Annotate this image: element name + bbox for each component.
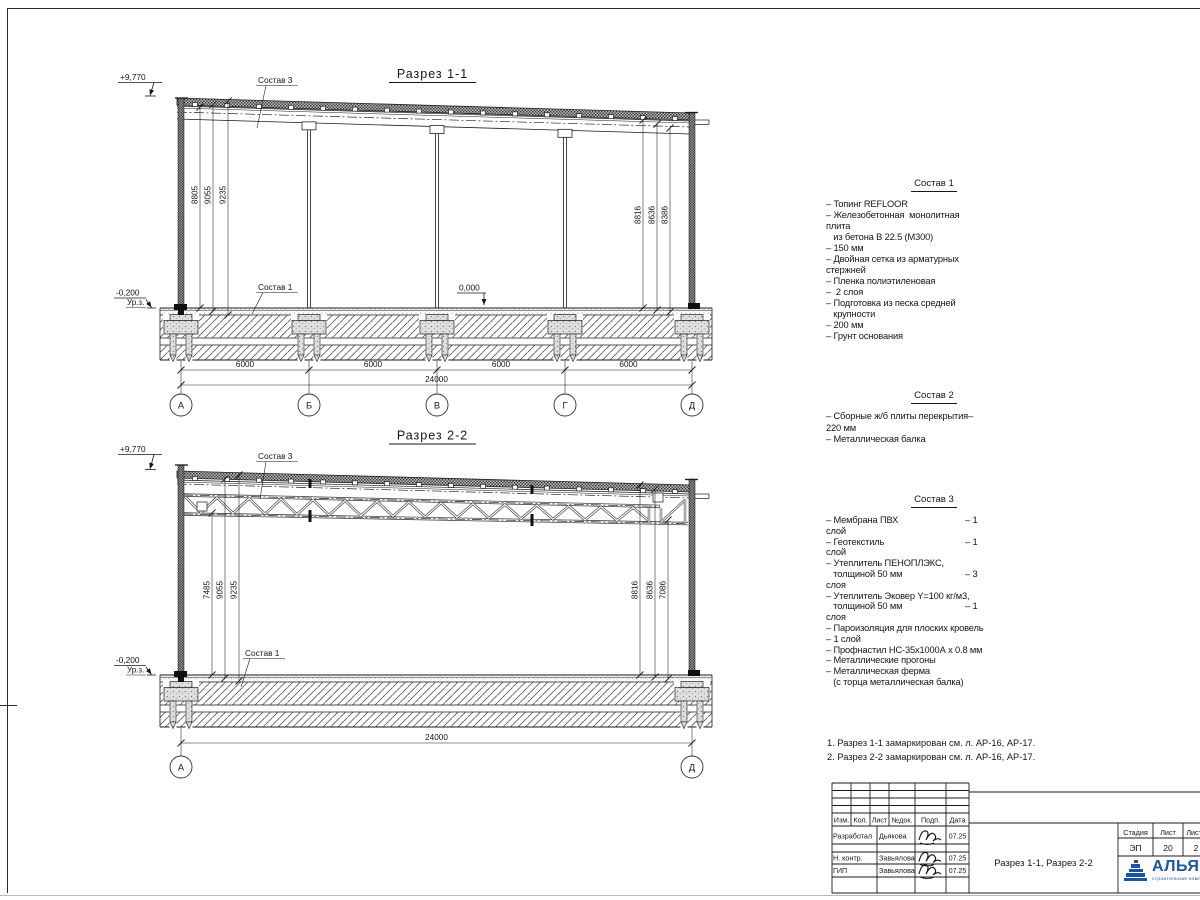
drawing-text: А (178, 400, 185, 410)
composition-item-value: – 1 (965, 537, 977, 548)
composition-line: – Пароизоляция для плоских кровель (826, 623, 1042, 634)
drawing-text: +9,770 (120, 72, 146, 82)
composition-line: слой (826, 526, 1042, 537)
sheet-notes: 1. Разрез 1-1 замаркирован см. л. АР-16,… (827, 737, 1035, 764)
composition-block: Состав 3– Мембрана ПВХ– 1слой– Геотексти… (826, 494, 1042, 688)
composition-item-text: – Металлическая ферма (826, 666, 930, 676)
composition-line: – Грунт основания (826, 331, 1042, 342)
drawing-text: Лист (872, 816, 888, 825)
composition-line: (с торца металлическая балка) (826, 677, 1042, 688)
drawing-text: ЭП (1129, 843, 1141, 853)
composition-item-text: крупности (826, 309, 875, 319)
composition-line: – Утеплитель Эковер Y=100 кг/м3, (826, 591, 1042, 602)
composition-item-value: – 1 (965, 601, 977, 612)
drawing-text: Разрез 1-1 (397, 67, 468, 81)
composition-line: – Сборные ж/б плиты перекрытия– (826, 411, 1042, 423)
drawing-text: Ур.з. (127, 298, 144, 307)
composition-line: – Металлические прогоны (826, 655, 1042, 666)
composition-title: Состав 1 (911, 178, 957, 192)
drawing-text: 07.25 (949, 868, 967, 875)
composition-item-text: толщиной 50 мм (826, 601, 902, 611)
drawing-text: Кол. (853, 816, 867, 825)
drawing-text: 24000 (425, 733, 448, 742)
composition-item-text: – Утеплитель ПЕНОПЛЭКС, (826, 558, 944, 568)
drawing-text: В (434, 400, 440, 410)
composition-line: – 150 мм (826, 243, 1042, 254)
composition-line: – Профнастил НС-35х1000А х 0.8 мм (826, 645, 1042, 656)
company-logo: АЛЬЯНС строительная компания (1124, 858, 1200, 882)
section-1-1-drawing: Разрез 1-1880590559235881686368386Состав… (100, 60, 745, 425)
composition-item-text: – Железобетонная монолитная (826, 210, 960, 220)
composition-line: слой (826, 547, 1042, 558)
composition-item-text: из бетона В 22.5 (М300) (826, 232, 933, 242)
composition-line: из бетона В 22.5 (М300) (826, 232, 1042, 243)
composition-item-text: 220 мм (826, 423, 856, 433)
drawing-text: 9235 (219, 185, 228, 204)
drawing-text: Б (306, 400, 312, 410)
drawing-text: 7086 (659, 580, 668, 599)
composition-line: – Металлическая ферма (826, 666, 1042, 677)
composition-line: – Металлическая балка (826, 434, 1042, 446)
composition-line: слоя (826, 580, 1042, 591)
drawing-text: 9235 (230, 580, 239, 599)
drawing-text: 2 (1194, 843, 1199, 853)
composition-block: Состав 1– Топинг REFLOOR– Железобетонная… (826, 178, 1042, 342)
drawing-text: Г (562, 400, 567, 410)
drawing-text: 8816 (634, 205, 643, 224)
sheet-frame-top (7, 8, 1200, 9)
composition-line: толщиной 50 мм– 3 (826, 569, 1042, 580)
composition-line: – Геотекстиль– 1 (826, 537, 1042, 548)
composition-line: – 200 мм (826, 320, 1042, 331)
composition-block: Состав 2– Сборные ж/б плиты перекрытия–2… (826, 390, 1042, 446)
composition-line: – Утеплитель ПЕНОПЛЭКС, (826, 558, 1042, 569)
composition-item-text: – Мембрана ПВХ (826, 515, 898, 525)
drawing-text: А (178, 762, 185, 772)
composition-line: слоя (826, 612, 1042, 623)
composition-line: – Железобетонная монолитная (826, 210, 1042, 221)
drawing-text: 8805 (191, 185, 200, 204)
composition-line: стержней (826, 265, 1042, 276)
composition-item-value: – 1 (965, 515, 977, 526)
composition-line: – Двойная сетка из арматурных (826, 254, 1042, 265)
drawing-text: 0,000 (459, 283, 480, 293)
drawing-text: 6000 (364, 360, 383, 369)
drawing-text: Д (689, 762, 696, 772)
note-line: 1. Разрез 1-1 замаркирован см. л. АР-16,… (827, 737, 1035, 751)
note-line: 2. Разрез 2-2 замаркирован см. л. АР-16,… (827, 751, 1035, 765)
drawing-text: Лист (1160, 828, 1176, 837)
drawing-text: -0,200 (116, 288, 140, 298)
composition-item-text: – Топинг REFLOOR (826, 199, 908, 209)
logo-text: АЛЬЯНС (1152, 858, 1200, 876)
composition-item-text: – Утеплитель Эковер Y=100 кг/м3, (826, 591, 969, 601)
composition-item-text: – Геотекстиль (826, 537, 884, 547)
drawing-text: 9055 (216, 580, 225, 599)
drawing-text: №док. (891, 816, 912, 825)
drawing-text: 20 (1163, 843, 1173, 853)
drawing-text: Стадия (1123, 828, 1148, 837)
drawing-text: 6000 (236, 360, 255, 369)
drawing-text: 9055 (204, 185, 213, 204)
drawing-text: Н. контр. (833, 854, 863, 863)
drawing-text: 8636 (648, 205, 657, 224)
composition-item-text: – Металлическая балка (826, 434, 926, 444)
logo-tagline: строительная компания (1152, 877, 1200, 882)
drawing-text: Ур.з. (127, 666, 144, 675)
sheet-frame-left (7, 8, 8, 893)
composition-line: – Подготовка из песка средней (826, 298, 1042, 309)
drawing-text: Подп. (921, 816, 940, 825)
composition-line: – Топинг REFLOOR (826, 199, 1042, 210)
composition-item-text: – Металлические прогоны (826, 655, 936, 665)
composition-item-text: (с торца металлическая балка) (826, 677, 963, 687)
composition-title: Состав 3 (911, 494, 957, 508)
composition-item-text: – Профнастил НС-35х1000А х 0.8 мм (826, 645, 982, 655)
composition-item-text: – Грунт основания (826, 331, 903, 341)
composition-item-text: стержней (826, 265, 866, 275)
drawing-text: Разрез 1-1, Разрез 2-2 (994, 858, 1093, 869)
drawing-text: +9,770 (120, 444, 146, 454)
sheet-frame-tick (0, 705, 17, 706)
signature-icon (919, 865, 941, 879)
drawing-text: Состав 1 (258, 282, 293, 292)
drawing-text: Разработал (833, 832, 872, 841)
drawing-text: 07.25 (949, 856, 967, 863)
composition-line: крупности (826, 309, 1042, 320)
composition-line: – Пленка полиэтиленовая (826, 276, 1042, 287)
composition-item-text: – Сборные ж/б плиты перекрытия– (826, 411, 973, 421)
drawing-text: Состав 3 (258, 75, 293, 85)
drawing-text: Д (689, 400, 696, 410)
composition-item-text: – 150 мм (826, 243, 863, 253)
drawing-text: Состав 1 (245, 648, 280, 658)
drawing-text: Завьялова (879, 866, 915, 875)
drawing-text: 7485 (203, 580, 212, 599)
signature-icon (919, 831, 941, 845)
drawing-text: 07.25 (949, 834, 967, 841)
composition-title: Состав 2 (911, 390, 957, 404)
composition-line: – Мембрана ПВХ– 1 (826, 515, 1042, 526)
drawing-sheet: { "section1": { "title": "Разрез 1-1", "… (0, 0, 1200, 900)
drawing-text: ГИП (833, 866, 847, 875)
drawing-text: 6000 (619, 360, 638, 369)
drawing-text: Листов (1186, 828, 1200, 837)
composition-item-text: – 1 слой (826, 634, 861, 644)
drawing-text: Дьякова (879, 832, 906, 841)
composition-item-value: – 3 (965, 569, 977, 580)
drawing-text: -0,200 (116, 655, 140, 665)
composition-line: плита (826, 221, 1042, 232)
drawing-text: Завьялова (879, 854, 915, 863)
composition-item-text: толщиной 50 мм (826, 569, 902, 579)
section-2-2-drawing: Разрез 2-2748590559235881686367086Состав… (100, 425, 745, 790)
composition-item-text: плита (826, 221, 850, 231)
composition-line: – 2 слоя (826, 287, 1042, 298)
drawing-text: 8386 (661, 205, 670, 224)
composition-item-text: слоя (826, 580, 846, 590)
drawing-text: 24000 (425, 375, 448, 384)
drawing-text: Разрез 2-2 (397, 429, 468, 443)
composition-line: – 1 слой (826, 634, 1042, 645)
composition-item-text: – Подготовка из песка средней (826, 298, 956, 308)
composition-line: толщиной 50 мм– 1 (826, 601, 1042, 612)
composition-item-text: слой (826, 547, 846, 557)
drawing-text: Изм. (834, 816, 849, 825)
composition-item-text: – Двойная сетка из арматурных (826, 254, 959, 264)
composition-line: 220 мм (826, 423, 1042, 435)
composition-item-text: – 200 мм (826, 320, 863, 330)
drawing-text: Состав 3 (258, 451, 293, 461)
composition-item-text: – 2 слоя (826, 287, 863, 297)
drawing-text: 6000 (492, 360, 511, 369)
composition-item-text: слоя (826, 612, 846, 622)
drawing-text: 8816 (631, 580, 640, 599)
composition-item-text: – Пароизоляция для плоских кровель (826, 623, 983, 633)
composition-item-text: слой (826, 526, 846, 536)
drawing-text: Дата (950, 816, 966, 825)
logo-triangle-icon (1124, 860, 1147, 881)
composition-item-text: – Пленка полиэтиленовая (826, 276, 935, 286)
drawing-text: 8636 (646, 580, 655, 599)
